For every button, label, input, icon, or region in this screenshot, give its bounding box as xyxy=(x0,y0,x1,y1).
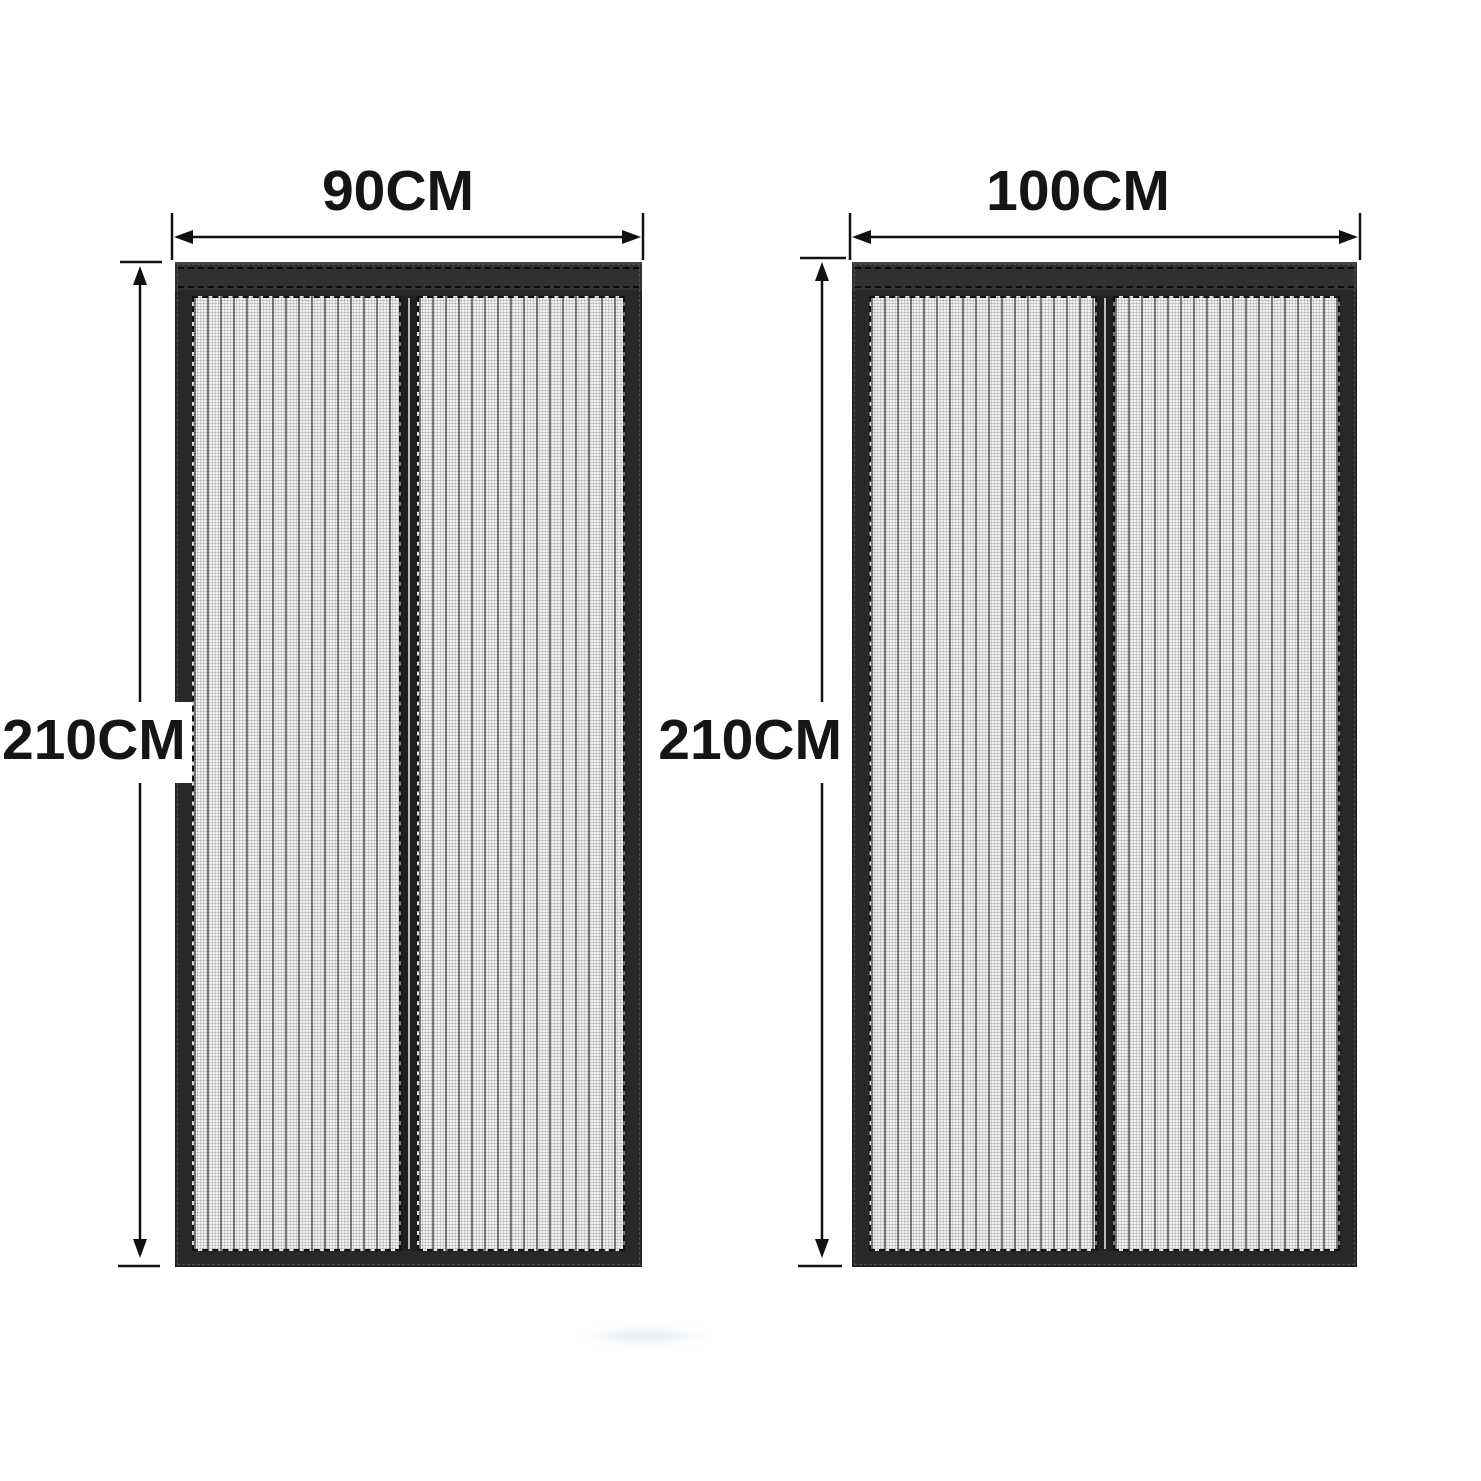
watermark-smudge xyxy=(580,1326,710,1346)
door1-width-label: 90CM xyxy=(198,163,598,220)
door2-body xyxy=(852,290,1357,1267)
door2-center-magnetic-seam xyxy=(1097,296,1113,1251)
door1-mesh-panel-left xyxy=(192,296,401,1251)
door2-frame xyxy=(852,262,1357,1267)
door2-mesh-panel-right xyxy=(1113,296,1341,1251)
door2-width-label: 100CM xyxy=(878,163,1278,220)
door2-top-rail xyxy=(852,262,1357,290)
door2-height-label: 210CM xyxy=(656,702,848,783)
door1-center-magnetic-seam xyxy=(401,296,417,1251)
product-dimension-diagram: 90CM 210CM 100CM xyxy=(0,0,1481,1481)
door1-mesh-panel-right xyxy=(417,296,626,1251)
door1-height-label: 210CM xyxy=(0,702,192,783)
door1-body xyxy=(175,290,642,1267)
door1-top-rail xyxy=(175,262,642,290)
door1-frame xyxy=(175,262,642,1267)
door2-mesh-panel-left xyxy=(869,296,1097,1251)
